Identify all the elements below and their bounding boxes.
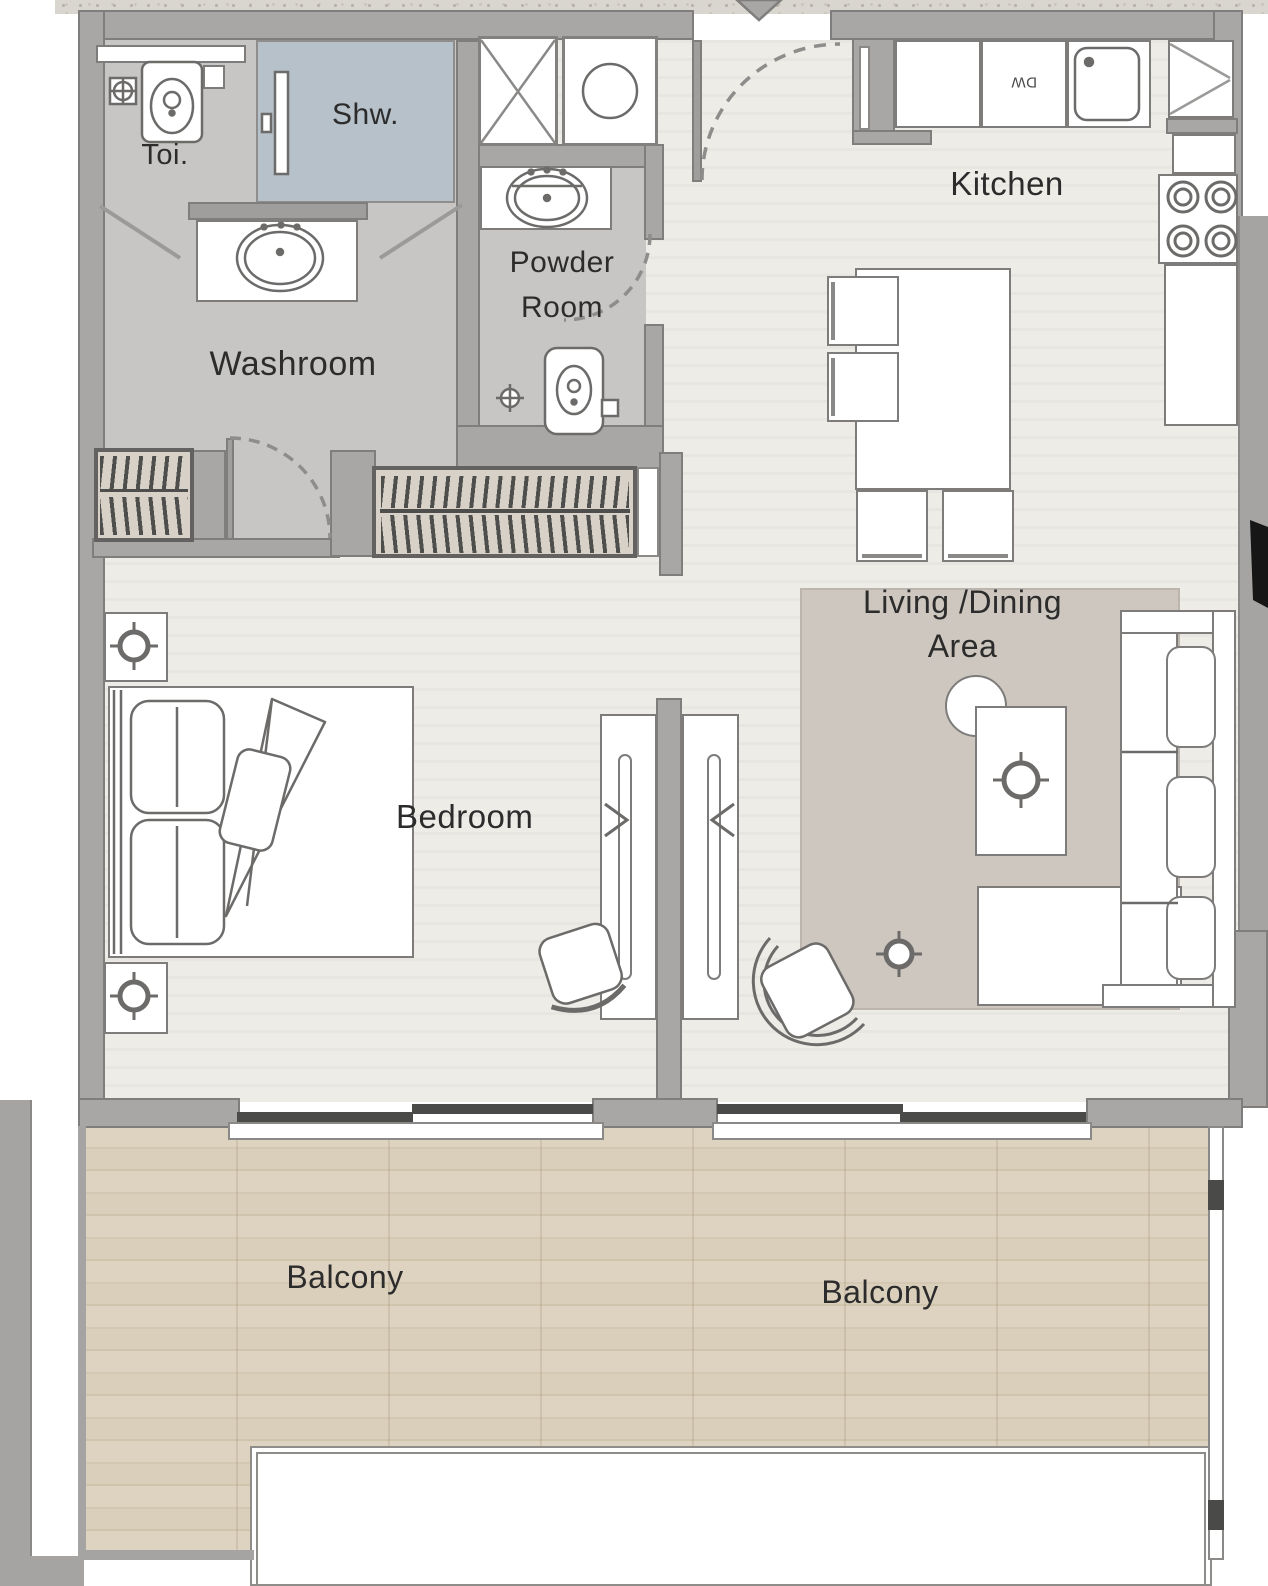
- living-slider-panel-a: [717, 1104, 903, 1114]
- label-toilet: Toi.: [125, 140, 205, 172]
- dining-chair-2: [827, 352, 899, 422]
- wall-bottom-c: [1086, 1098, 1243, 1128]
- living-slider-panel-b: [900, 1112, 1086, 1122]
- wall-stub-closet-right: [190, 450, 226, 540]
- wall-powder-bottom: [456, 425, 664, 469]
- nightstand-top: [104, 612, 168, 682]
- dining-chair-3: [856, 490, 928, 562]
- label-balcony-right: Balcony: [790, 1275, 970, 1310]
- vanity-cabinet: [196, 220, 358, 302]
- stove: [1158, 174, 1238, 264]
- dining-chair-1: [827, 276, 899, 346]
- pocket-door-left-slot: [618, 754, 632, 980]
- wall-powder-top: [478, 144, 646, 168]
- balcony-wall-bottom: [78, 1550, 254, 1560]
- washroom-door-leaf: [226, 438, 234, 540]
- kitchen-jamb-slot: [859, 46, 870, 130]
- wall-below-fridge: [1166, 118, 1238, 134]
- label-dishwasher: DW: [1000, 73, 1048, 90]
- dining-chair-4: [942, 490, 1014, 562]
- bed: [108, 686, 414, 958]
- bedroom-slider-sill: [228, 1122, 604, 1140]
- sofa-cushion-2: [1166, 776, 1216, 878]
- wall-bottom-b: [592, 1098, 718, 1128]
- sofa-cushion-3: [1166, 896, 1216, 980]
- railing-cap-bottom: [1208, 1500, 1224, 1530]
- utility-shaft: [478, 36, 558, 146]
- label-bedroom: Bedroom: [396, 799, 596, 835]
- balcony-notch: [250, 1446, 1212, 1586]
- powder-sink-counter: [480, 166, 612, 230]
- exterior-wall-left: [0, 1100, 32, 1586]
- vanity-counter-edge: [188, 202, 368, 220]
- closet-small-hangers-top: [100, 456, 188, 492]
- toilet-bin: [203, 65, 225, 89]
- closet-large-hangers-bottom: [381, 515, 629, 553]
- wall-powder-right-a: [644, 144, 664, 240]
- exterior-wall-corner: [0, 1556, 84, 1586]
- closet-side-slot: [637, 467, 659, 557]
- wall-block-mid: [330, 450, 376, 557]
- closet-large-rail: [380, 509, 630, 513]
- label-living-line2: Area: [840, 629, 1085, 664]
- wall-top-right: [830, 10, 1243, 40]
- nightstand-bottom: [104, 962, 168, 1034]
- wall-closet-right: [659, 452, 683, 576]
- label-shower: Shw.: [318, 98, 413, 131]
- label-kitchen: Kitchen: [912, 166, 1102, 202]
- sofa-cushion-1: [1166, 646, 1216, 748]
- bedroom-slider-panel-b: [412, 1104, 593, 1114]
- wall-bottom-a: [78, 1098, 240, 1128]
- closet-large-hangers-top: [381, 476, 629, 508]
- coffee-table: [975, 706, 1067, 856]
- counter-above-stove: [1172, 134, 1236, 174]
- washer-unit: [562, 36, 658, 146]
- floor-plan: Washroom Toi. Shw. Powder Room Kitchen L…: [0, 0, 1268, 1586]
- wall-kitchen-jamb-foot: [852, 130, 932, 145]
- label-living-line1: Living /Dining: [840, 585, 1085, 620]
- kitchen-cabinet: [895, 40, 981, 128]
- living-slider-sill: [712, 1122, 1092, 1140]
- bedroom-slider-panel-a: [237, 1112, 413, 1122]
- railing-cap-top: [1208, 1180, 1224, 1210]
- wall-center-stub: [656, 698, 682, 1100]
- toilet-shelf: [96, 45, 246, 63]
- label-balcony-left: Balcony: [255, 1260, 435, 1295]
- label-powder-line2: Room: [476, 291, 648, 324]
- pocket-door-right-slot: [707, 754, 721, 980]
- kitchen-sink-unit: [1067, 40, 1151, 128]
- entry-door-leaf: [692, 40, 702, 182]
- counter-below-stove: [1164, 264, 1238, 426]
- fridge: [1168, 40, 1234, 118]
- label-powder-line1: Powder: [476, 246, 648, 279]
- balcony-wall-left: [78, 1126, 86, 1558]
- closet-small-hangers-bottom: [100, 497, 188, 535]
- label-washroom: Washroom: [178, 346, 408, 383]
